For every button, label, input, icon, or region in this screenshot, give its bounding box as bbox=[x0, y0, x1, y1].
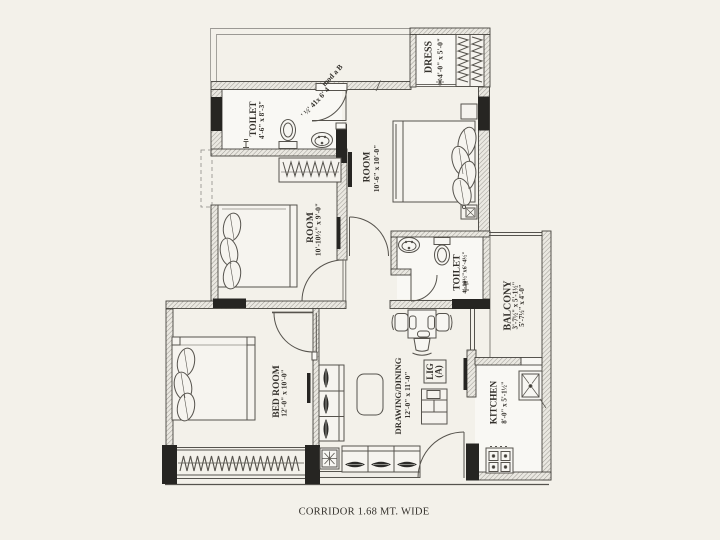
svg-text:KITCHEN: KITCHEN bbox=[489, 380, 499, 424]
svg-text:4'-6" x 8'-3": 4'-6" x 8'-3" bbox=[258, 101, 266, 139]
svg-text:ROOM: ROOM bbox=[363, 152, 373, 183]
svg-text:(A): (A) bbox=[434, 365, 444, 378]
svg-text:DRESS: DRESS bbox=[424, 40, 435, 73]
svg-text:10'-6" x 10'-0": 10'-6" x 10'-0" bbox=[372, 145, 381, 193]
svg-text:DRAWING/DINING: DRAWING/DINING bbox=[393, 357, 403, 434]
svg-text:TOILET: TOILET bbox=[248, 101, 258, 136]
svg-text:4'-10½"x6'-4½": 4'-10½"x6'-4½" bbox=[462, 251, 469, 293]
svg-text:10'-10½" x 9'-0": 10'-10½" x 9'-0" bbox=[314, 203, 323, 256]
svg-text:12'-0" x 11'-0": 12'-0" x 11'-0" bbox=[403, 371, 412, 418]
svg-text:5'-7½" x 4'-0": 5'-7½" x 4'-0" bbox=[518, 284, 526, 327]
svg-text:8'-0" x 5'-1½": 8'-0" x 5'-1½" bbox=[501, 381, 509, 424]
svg-text:12'-0" x 10'-0": 12'-0" x 10'-0" bbox=[280, 369, 289, 417]
svg-text:4'-0" x 5'-0": 4'-0" x 5'-0" bbox=[436, 38, 445, 78]
svg-text:CORRIDOR 1.68 MT. WIDE: CORRIDOR 1.68 MT. WIDE bbox=[299, 507, 430, 518]
